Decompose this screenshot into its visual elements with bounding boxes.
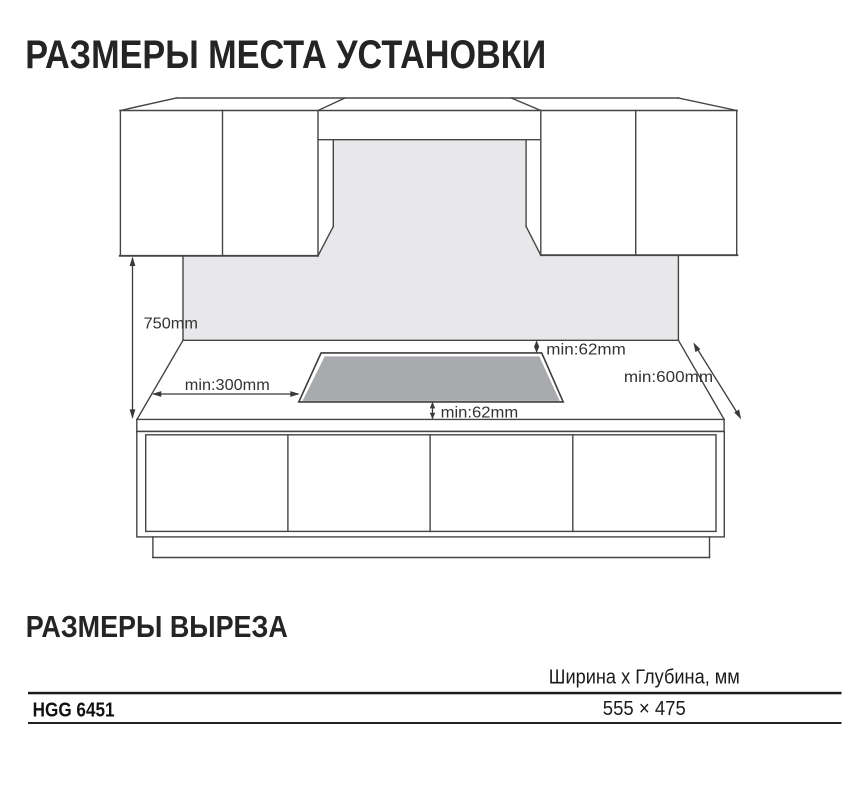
- svg-text:750mm: 750mm: [144, 316, 198, 333]
- svg-text:min:300mm: min:300mm: [185, 377, 270, 394]
- svg-text:РАЗМЕРЫ МЕСТА УСТАНОВКИ: РАЗМЕРЫ МЕСТА УСТАНОВКИ: [25, 33, 546, 77]
- svg-text:Ширина x Глубина, мм: Ширина x Глубина, мм: [549, 666, 740, 688]
- svg-text:min:62mm: min:62mm: [546, 341, 626, 358]
- svg-text:РАЗМЕРЫ ВЫРЕЗА: РАЗМЕРЫ ВЫРЕЗА: [26, 611, 288, 644]
- svg-text:min:600mm: min:600mm: [624, 369, 713, 386]
- svg-text:HGG 6451: HGG 6451: [33, 700, 115, 722]
- svg-text:555 × 475: 555 × 475: [603, 698, 686, 720]
- svg-text:min:62mm: min:62mm: [441, 404, 519, 421]
